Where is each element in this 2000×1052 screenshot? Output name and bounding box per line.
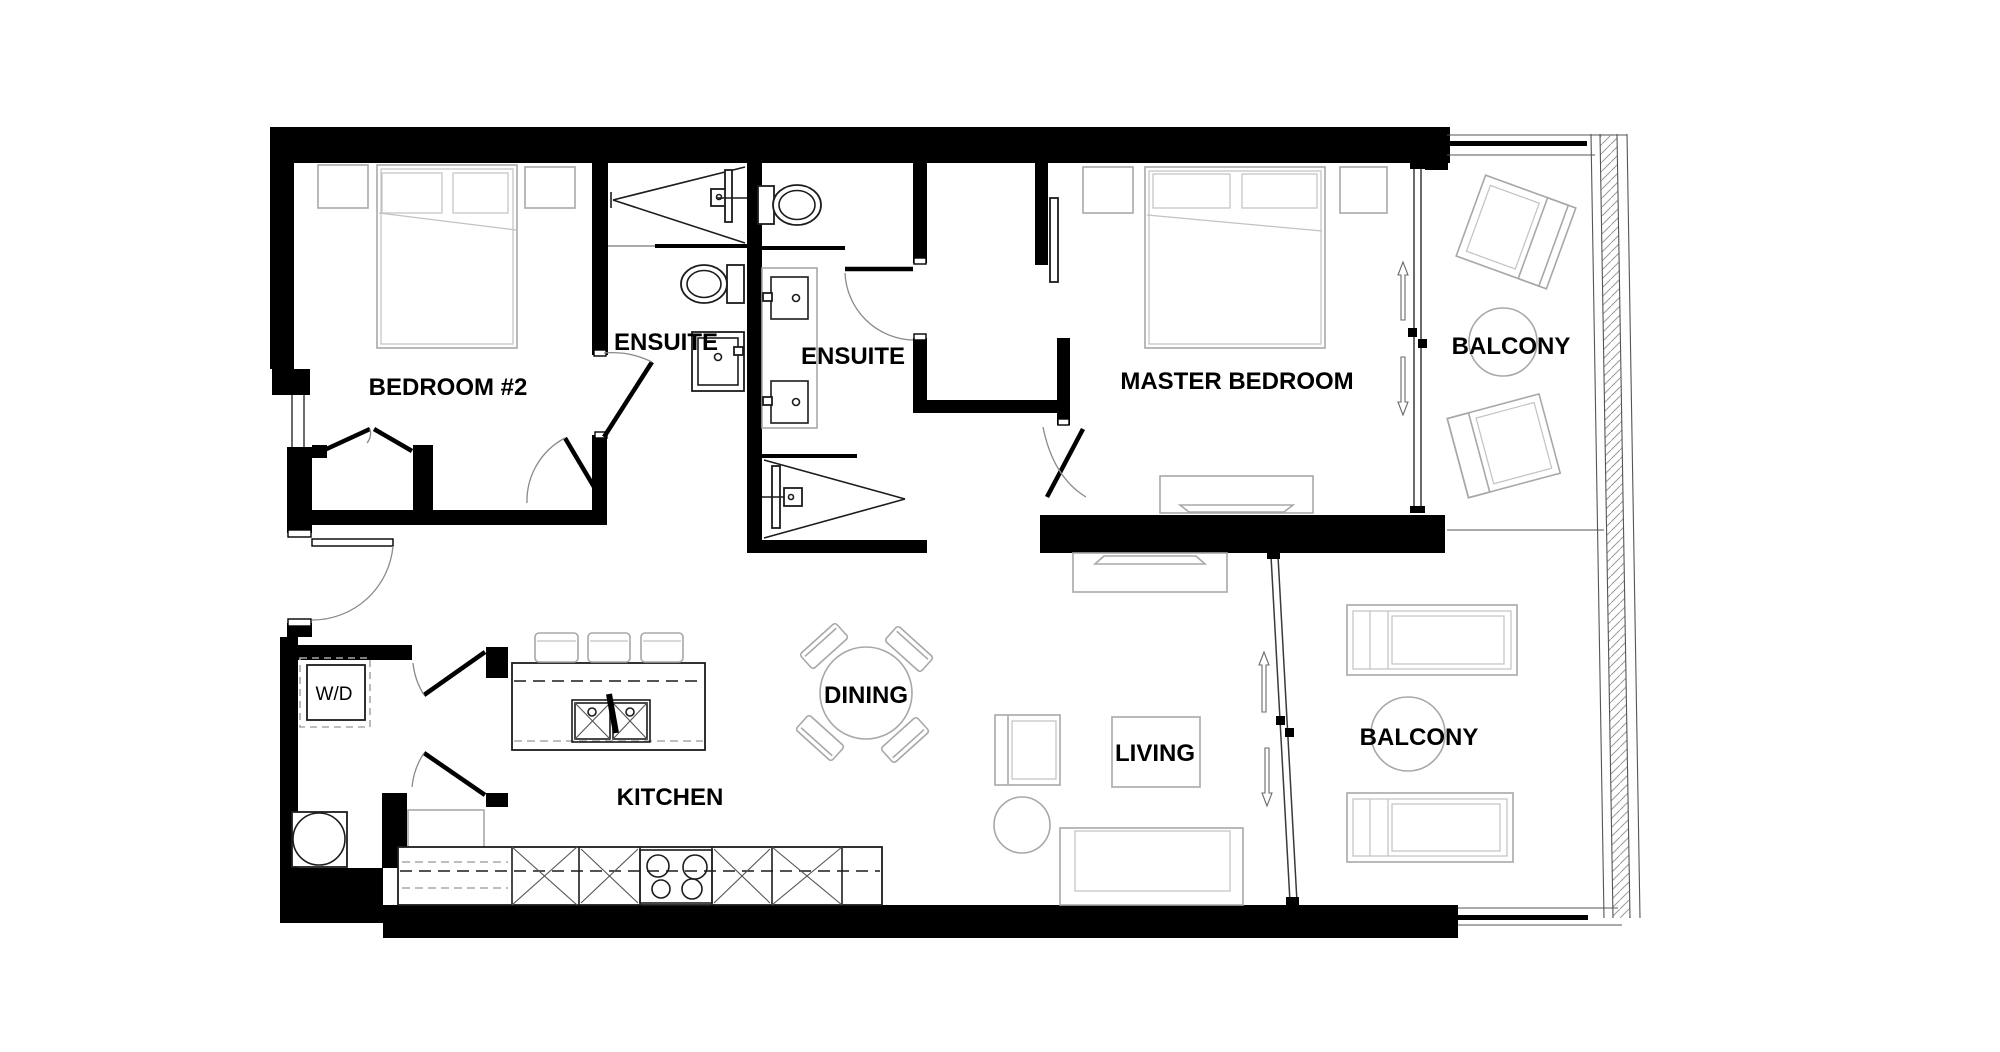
bedroom2-furniture bbox=[318, 165, 600, 503]
bar-stool-icon bbox=[641, 633, 683, 662]
storage-door-icon bbox=[412, 753, 485, 795]
kitchen-island-icon bbox=[512, 663, 705, 750]
shower-icon bbox=[762, 456, 905, 538]
slide-down-arrow-icon bbox=[1262, 748, 1272, 806]
slide-down-arrow-icon bbox=[1398, 357, 1408, 415]
entry-door-icon bbox=[312, 539, 393, 620]
ensuite2-door-icon bbox=[845, 269, 913, 340]
nightstand-icon bbox=[1340, 167, 1387, 213]
side-table-icon bbox=[994, 797, 1050, 853]
dining-chair-icon bbox=[795, 715, 844, 762]
ensuite1-fixtures bbox=[604, 167, 747, 437]
lounge-chair-icon bbox=[1347, 793, 1513, 862]
ensuite1-door-icon bbox=[604, 353, 652, 437]
toilet-icon bbox=[758, 185, 821, 225]
room-label-living: LIVING bbox=[1115, 740, 1195, 767]
master-balcony-slider-icon bbox=[1398, 163, 1448, 513]
room-label-balcony-lower: BALCONY bbox=[1360, 724, 1479, 751]
bar-stool-icon bbox=[535, 633, 578, 662]
bed-icon bbox=[1145, 167, 1325, 348]
room-label-ensuite2: ENSUITE bbox=[801, 343, 905, 370]
nightstand-icon bbox=[318, 165, 368, 208]
kitchen-counter-icon bbox=[398, 847, 882, 905]
laundry-tub-icon bbox=[292, 812, 347, 867]
mirror-slider-icon bbox=[1050, 198, 1058, 282]
room-label-laundry: W/D bbox=[316, 684, 353, 705]
room-label-dining: DINING bbox=[824, 682, 908, 709]
toilet-icon bbox=[681, 265, 744, 303]
tv-console-icon bbox=[1073, 553, 1227, 592]
dining-chair-icon bbox=[799, 623, 848, 670]
door-jambs bbox=[288, 258, 1069, 626]
floor-plan-drawing: BEDROOM #2 ENSUITE ENSUITE MASTER BEDROO… bbox=[0, 0, 2000, 1052]
bed-icon bbox=[377, 165, 517, 348]
patio-chair-icon bbox=[1456, 175, 1576, 289]
room-label-bedroom2: BEDROOM #2 bbox=[369, 374, 528, 401]
room-label-master-bedroom: MASTER BEDROOM bbox=[1120, 368, 1353, 395]
room-label-kitchen: KITCHEN bbox=[617, 784, 724, 811]
slide-up-arrow-icon bbox=[1398, 262, 1408, 320]
slide-up-arrow-icon bbox=[1259, 652, 1269, 712]
master-bedroom-furniture bbox=[1083, 167, 1387, 513]
dining-chair-icon bbox=[880, 717, 929, 764]
balcony-railing bbox=[1447, 134, 1640, 925]
living-balcony-slider-icon bbox=[1259, 553, 1299, 905]
hall-door-icon bbox=[413, 652, 485, 695]
shower-icon bbox=[608, 167, 747, 246]
armchair-icon bbox=[995, 715, 1060, 785]
nightstand-icon bbox=[525, 167, 575, 208]
bifold-closet-doors-icon bbox=[320, 429, 412, 452]
patio-chair-icon bbox=[1447, 394, 1560, 498]
sofa-icon bbox=[1060, 828, 1243, 905]
bedroom2-window bbox=[292, 395, 304, 447]
bar-stool-icon bbox=[588, 633, 630, 662]
dining-chair-icon bbox=[884, 626, 933, 673]
floor-plan-canvas: BEDROOM #2 ENSUITE ENSUITE MASTER BEDROO… bbox=[0, 0, 2000, 1052]
room-label-balcony-upper: BALCONY bbox=[1452, 333, 1571, 360]
lounge-chair-icon bbox=[1347, 605, 1517, 675]
bedroom2-door-icon bbox=[527, 438, 600, 503]
master-door-icon bbox=[1043, 427, 1086, 497]
kitchen-fixtures bbox=[398, 633, 882, 905]
nightstand-icon bbox=[1083, 167, 1133, 213]
living-furniture bbox=[994, 553, 1243, 905]
railing-hatch bbox=[1600, 134, 1630, 918]
dresser-tv-icon bbox=[1160, 476, 1313, 513]
room-label-ensuite1: ENSUITE bbox=[614, 329, 718, 356]
